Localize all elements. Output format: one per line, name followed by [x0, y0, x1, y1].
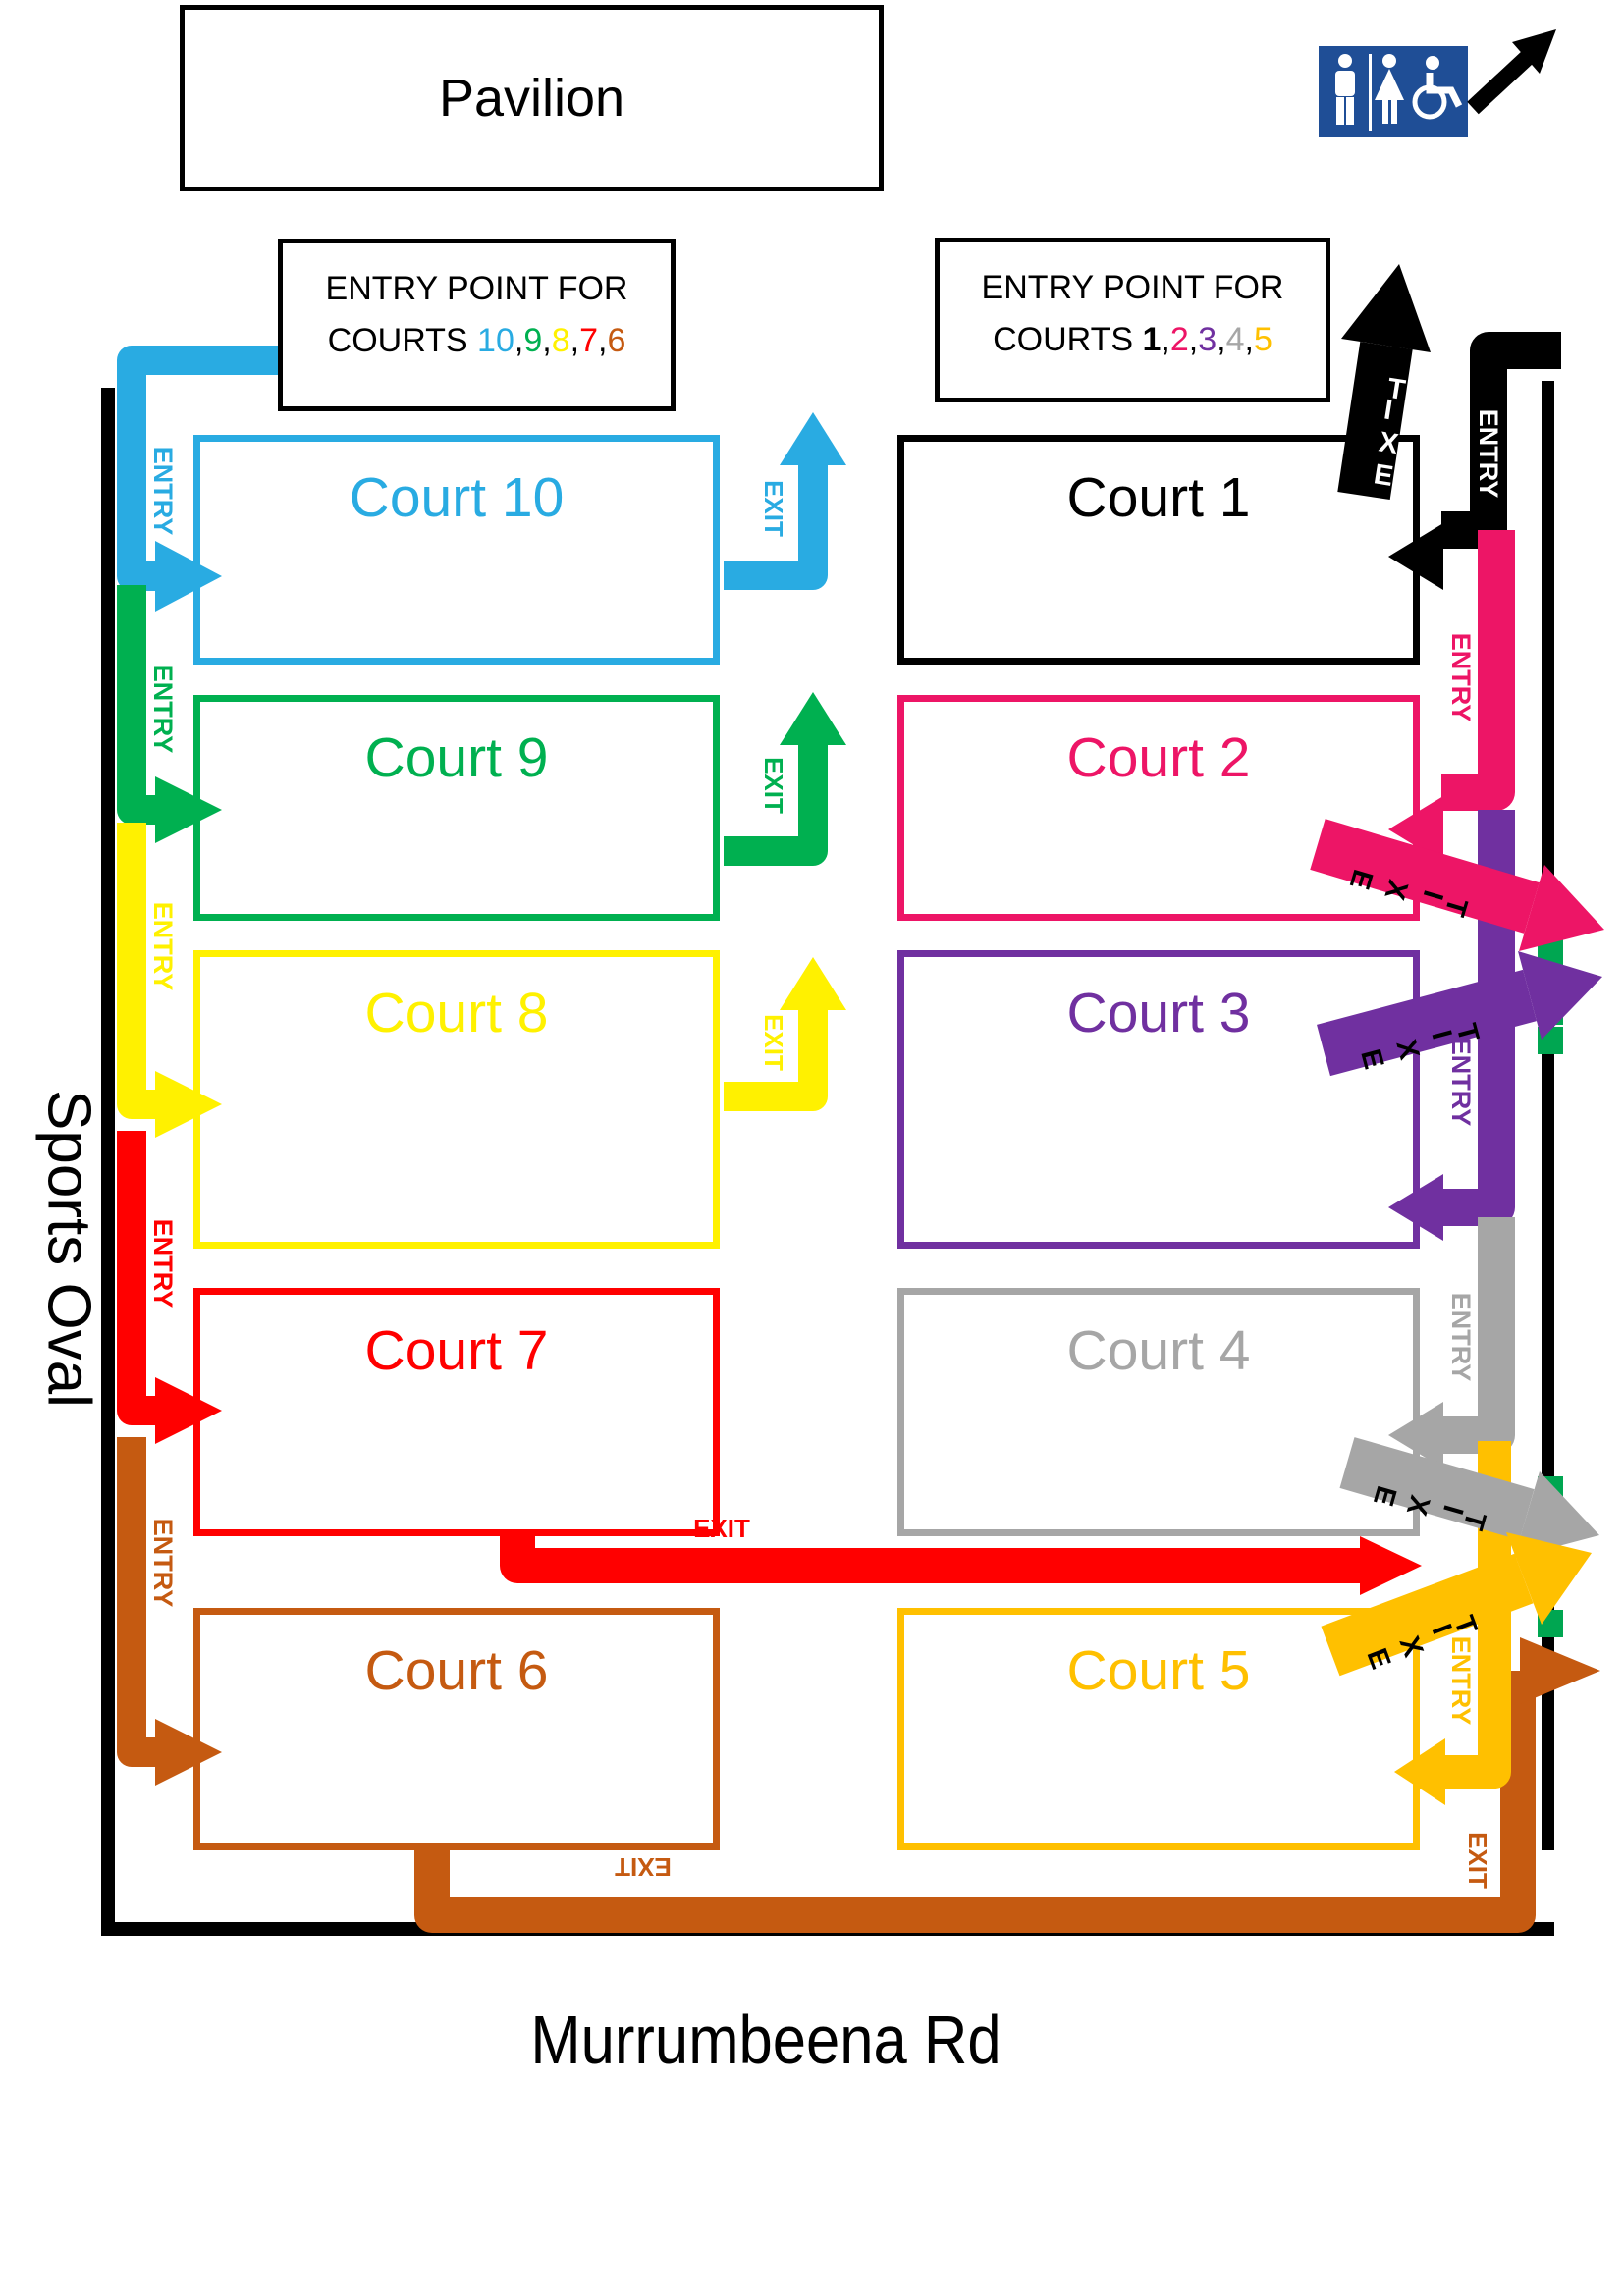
wheelchair-icon [1415, 56, 1459, 117]
court-4-label: Court 4 [904, 1318, 1413, 1383]
court-8-box: Court 8 [193, 950, 720, 1249]
court-9-label: Court 9 [200, 725, 713, 790]
court-2-label: Court 2 [904, 725, 1413, 790]
court-6-label: Court 6 [200, 1638, 713, 1703]
entry-point-court-number: 10 [477, 322, 514, 359]
entry-point-right-line2: COURTS 1,2,3,4,5 [940, 314, 1326, 366]
court-9-box: Court 9 [193, 695, 720, 921]
comma: , [1245, 321, 1254, 358]
gate-icon [1538, 997, 1563, 1025]
pavilion-box: Pavilion [180, 5, 884, 191]
gate-icon [1538, 1476, 1563, 1504]
court4-entry-label: ENTRY [1446, 1293, 1476, 1382]
pavilion-label: Pavilion [439, 68, 624, 129]
court-10-label: Court 10 [200, 465, 713, 530]
entry-point-left-court-numbers: 10,9,8,7,6 [477, 322, 625, 359]
court9-entry-label: ENTRY [148, 665, 178, 754]
entry-point-right-prefix: COURTS [993, 321, 1142, 358]
entry-point-court-number: 8 [552, 322, 570, 359]
court6-entry-label: ENTRY [148, 1519, 178, 1608]
comma: , [542, 322, 551, 359]
court8-entry-label: ENTRY [148, 902, 178, 991]
sports-oval-label: Sports Oval [34, 1090, 104, 1408]
court10-exit-label: EXIT [759, 480, 788, 537]
comma: , [1189, 321, 1198, 358]
court2-entry-label: ENTRY [1446, 633, 1476, 722]
entry-point-court-number: 1 [1142, 321, 1161, 358]
entry-point-court-number: 6 [607, 322, 625, 359]
entry-point-left-line1: ENTRY POINT FOR [283, 263, 671, 315]
comma: , [514, 322, 523, 359]
court-1-label: Court 1 [904, 465, 1413, 530]
court9-exit-label: EXIT [759, 757, 788, 814]
court-7-label: Court 7 [200, 1318, 713, 1383]
entry-point-left-prefix: COURTS [328, 322, 477, 359]
court6-exit-label-2: EXIT [1463, 1832, 1492, 1889]
entry-point-court-number: 2 [1170, 321, 1189, 358]
toilet-sign [1319, 29, 1556, 137]
entry-point-left-line2: COURTS 10,9,8,7,6 [283, 315, 671, 367]
entry-point-box-right: ENTRY POINT FOR COURTS 1,2,3,4,5 [935, 238, 1330, 402]
entry-point-box-left: ENTRY POINT FOR COURTS 10,9,8,7,6 [278, 239, 676, 411]
court1-entry-label: ENTRY [1474, 409, 1503, 499]
entry-point-right-line1: ENTRY POINT FOR [940, 262, 1326, 314]
court8-exit-label: EXIT [759, 1014, 788, 1071]
court-2-box: Court 2 [897, 695, 1420, 921]
court5-entry-label: ENTRY [1446, 1636, 1476, 1726]
entry-point-right-court-numbers: 1,2,3,4,5 [1142, 321, 1272, 358]
court6-exit-label: EXIT [615, 1852, 672, 1882]
gate-icon [1538, 938, 1563, 966]
road-label: Murrumbeena Rd [438, 2001, 1095, 2079]
gate-icon [1538, 897, 1563, 925]
court-6-box: Court 6 [193, 1608, 720, 1850]
court-10-box: Court 10 [193, 435, 720, 665]
comma: , [1217, 321, 1225, 358]
court10-entry-label: ENTRY [148, 447, 178, 536]
gate-icon [1538, 1610, 1563, 1637]
court-8-label: Court 8 [200, 981, 713, 1045]
entry-point-court-number: 4 [1226, 321, 1245, 358]
court-1-box: Court 1 [897, 435, 1420, 665]
court3-entry-label: ENTRY [1446, 1038, 1476, 1127]
divider-line [1369, 54, 1372, 131]
entry-point-court-number: 3 [1198, 321, 1217, 358]
court8-exit-arrow: EXIT [724, 957, 846, 1096]
gate-markers [1538, 897, 1563, 1637]
court-3-box: Court 3 [897, 950, 1420, 1249]
court-5-box: Court 5 [897, 1608, 1420, 1850]
court7-entry-label: ENTRY [148, 1219, 178, 1308]
entry-point-court-number: 5 [1254, 321, 1272, 358]
comma: , [1161, 321, 1169, 358]
comma: , [570, 322, 579, 359]
direction-arrow-icon [1473, 29, 1556, 108]
female-icon [1375, 54, 1404, 124]
court9-exit-arrow: EXIT [724, 692, 846, 851]
court-7-box: Court 7 [193, 1288, 720, 1536]
entry-point-court-number: 9 [523, 322, 542, 359]
male-icon [1335, 54, 1355, 125]
court-5-label: Court 5 [904, 1638, 1413, 1703]
gate-icon [1538, 1027, 1563, 1054]
entry-point-court-number: 7 [579, 322, 598, 359]
court10-exit-arrow: EXIT [724, 412, 846, 575]
court-4-box: Court 4 [897, 1288, 1420, 1536]
gate-icon [1538, 1512, 1563, 1539]
court-3-label: Court 3 [904, 981, 1413, 1045]
